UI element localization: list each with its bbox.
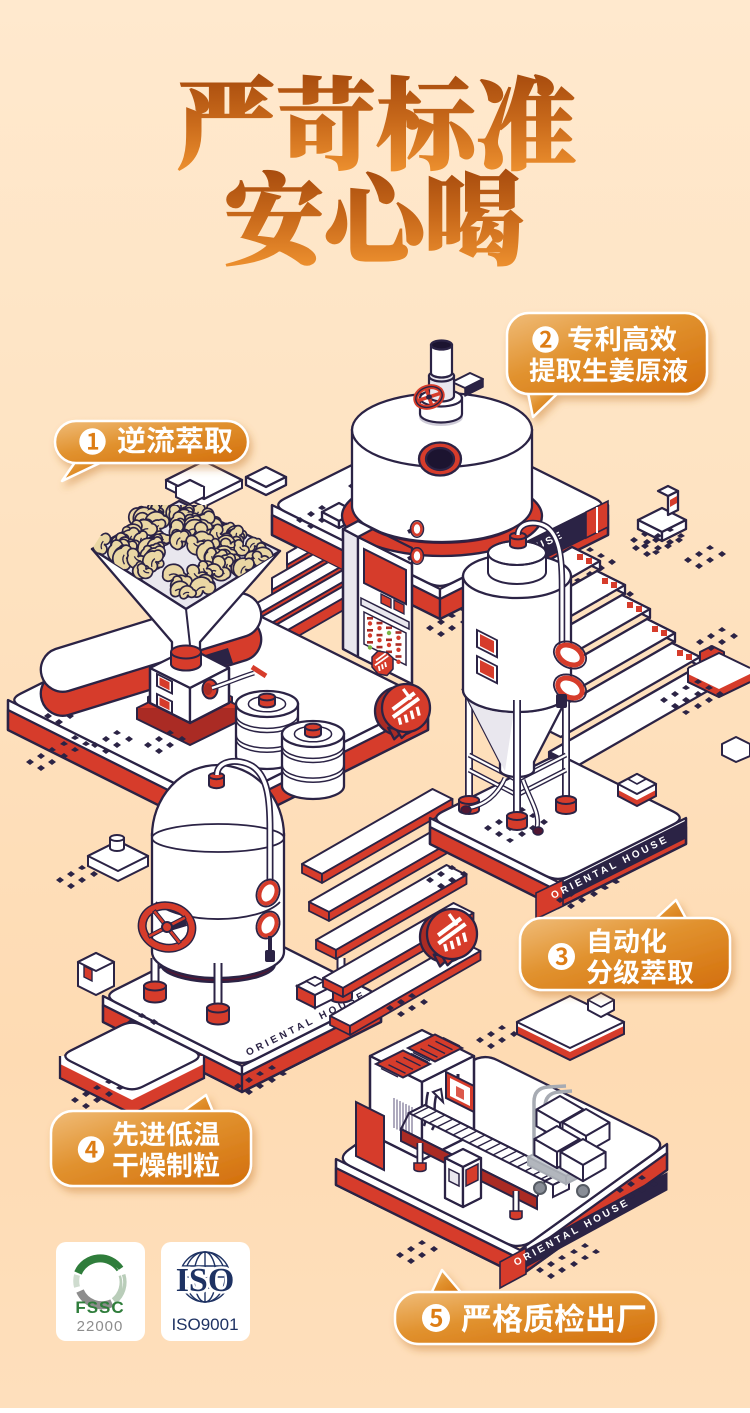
svg-text:ISO9001: ISO9001 [171, 1315, 238, 1334]
svg-text:ISO: ISO [176, 1262, 235, 1299]
svg-text:22000: 22000 [77, 1318, 124, 1335]
svg-text:FSSC: FSSC [75, 1298, 124, 1317]
